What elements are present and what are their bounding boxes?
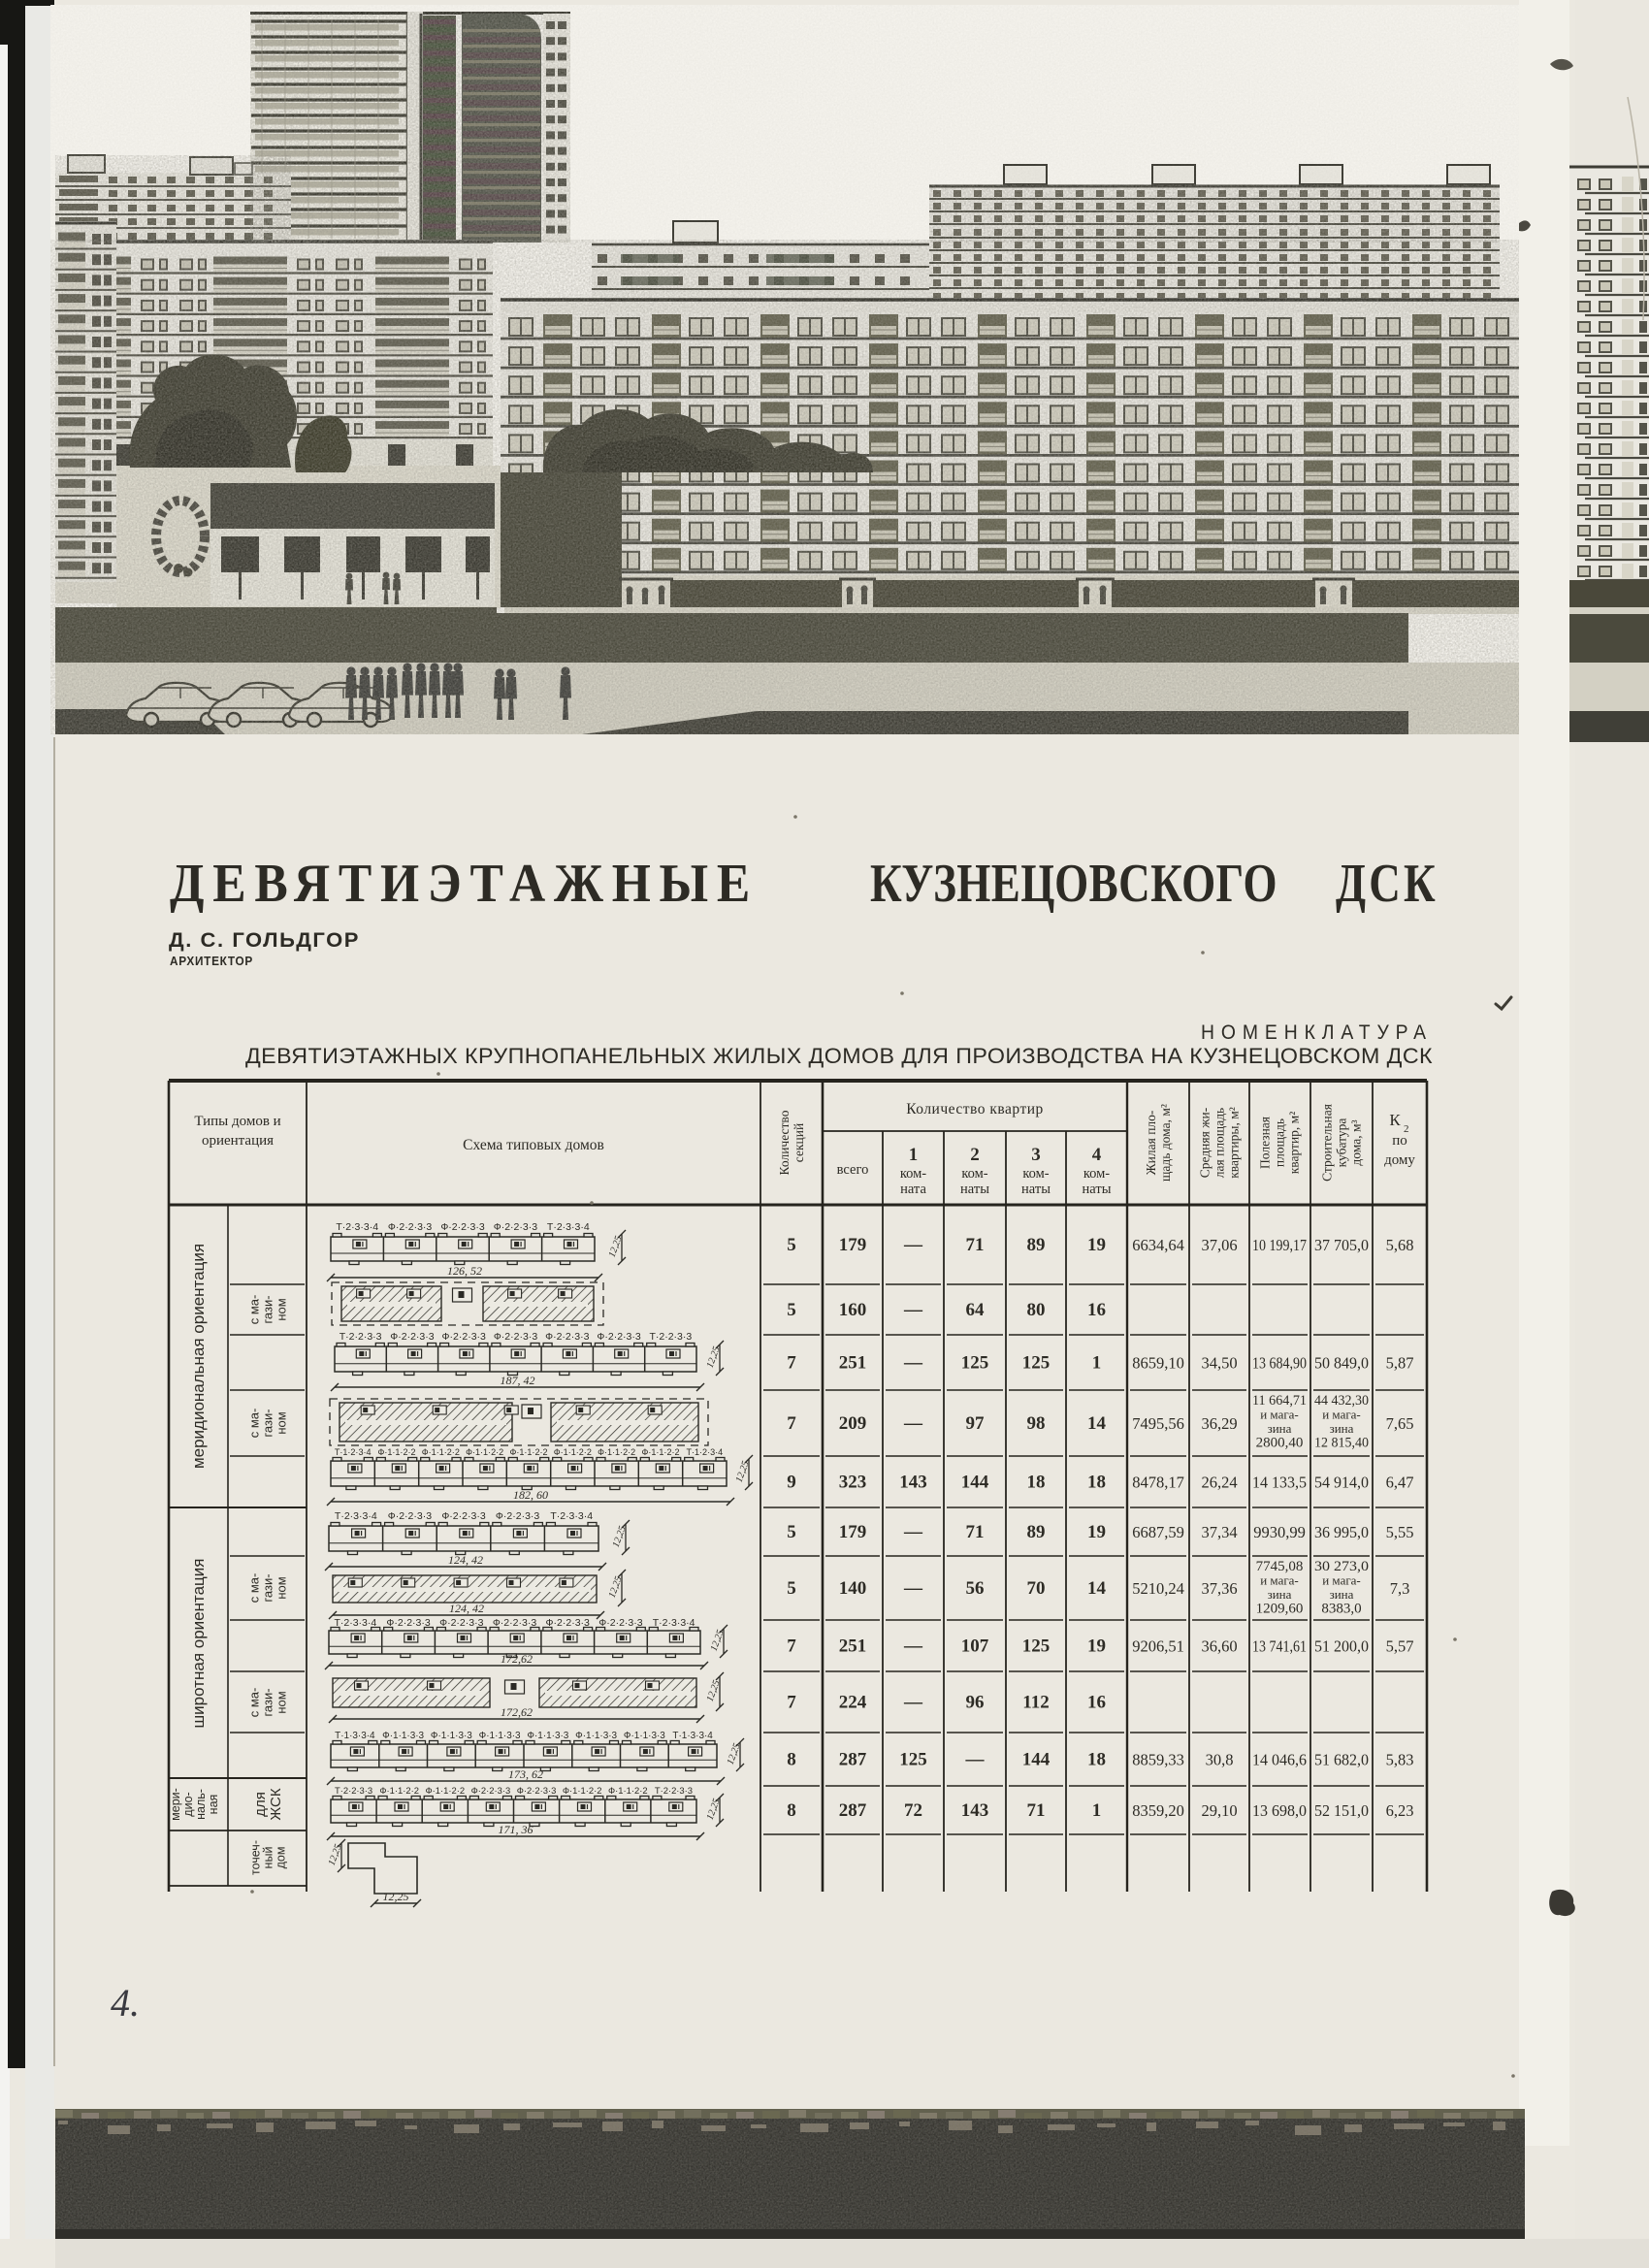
svg-text:АРХИТЕКТОР: АРХИТЕКТОР	[170, 954, 253, 968]
svg-text:наты: наты	[1021, 1182, 1051, 1197]
svg-text:ком-: ком-	[1083, 1166, 1110, 1182]
svg-text:с ма-: с ма-	[247, 1295, 262, 1325]
svg-text:2: 2	[970, 1145, 980, 1165]
svg-text:Т·2·3·3·4: Т·2·3·3·4	[336, 1221, 378, 1233]
svg-text:—: —	[903, 1413, 923, 1434]
svg-text:Ф·1·1·3·3: Ф·1·1·3·3	[431, 1731, 472, 1741]
svg-text:8859,33: 8859,33	[1132, 1751, 1184, 1769]
svg-text:36,29: 36,29	[1201, 1414, 1237, 1433]
svg-text:12,25: 12,25	[383, 1890, 409, 1903]
svg-text:Т·2·2·3·3: Т·2·2·3·3	[335, 1785, 372, 1796]
svg-text:наты: наты	[1083, 1182, 1112, 1197]
svg-text:126, 52: 126, 52	[447, 1264, 482, 1278]
svg-text:и мага-: и мага-	[1260, 1408, 1299, 1422]
svg-text:6,47: 6,47	[1386, 1474, 1414, 1492]
svg-text:Т·2·2·3·3: Т·2·2·3·3	[649, 1331, 692, 1343]
svg-text:точеч-: точеч-	[248, 1840, 262, 1875]
svg-text:Ф·1·1·2·2: Ф·1·1·2·2	[426, 1785, 466, 1796]
svg-text:Т·2·2·3·3: Т·2·2·3·3	[655, 1785, 693, 1796]
svg-text:70: 70	[1027, 1578, 1046, 1599]
svg-text:1: 1	[1092, 1353, 1102, 1374]
svg-text:КУЗНЕЦОВСКОГО: КУЗНЕЦОВСКОГО	[870, 854, 1277, 914]
svg-text:14 046,6: 14 046,6	[1252, 1751, 1307, 1769]
svg-text:с ма-: с ма-	[247, 1573, 262, 1604]
svg-text:квартир, м²: квартир, м²	[1287, 1112, 1302, 1175]
svg-text:Т·2·3·3·4: Т·2·3·3·4	[335, 1510, 377, 1522]
svg-text:125: 125	[899, 1750, 927, 1770]
svg-text:5: 5	[787, 1300, 796, 1320]
svg-text:Ф·1·1·2·2: Ф·1·1·2·2	[563, 1785, 602, 1796]
svg-text:ДЕВЯТИЭТАЖНЫХ КРУПНОПАНЕЛЬНЫХ: ДЕВЯТИЭТАЖНЫХ КРУПНОПАНЕЛЬНЫХ ЖИЛЫХ ДОМО…	[245, 1044, 1433, 1068]
svg-text:107: 107	[961, 1636, 989, 1657]
svg-text:с ма-: с ма-	[247, 1409, 262, 1439]
svg-text:12 815,40: 12 815,40	[1314, 1436, 1369, 1451]
svg-text:1: 1	[909, 1145, 919, 1165]
svg-text:5,68: 5,68	[1386, 1236, 1414, 1254]
svg-text:кубатура: кубатура	[1335, 1118, 1349, 1168]
svg-text:—: —	[903, 1353, 923, 1374]
svg-text:гази-: гази-	[261, 1409, 275, 1437]
svg-text:Полезная: Полезная	[1258, 1117, 1273, 1169]
svg-text:ном: ном	[275, 1411, 289, 1434]
svg-text:ном: ном	[275, 1576, 289, 1599]
svg-text:Ф·1·1·2·2: Ф·1·1·2·2	[608, 1785, 648, 1796]
svg-text:Средняя жи-: Средняя жи-	[1198, 1107, 1212, 1178]
svg-text:и мага-: и мага-	[1322, 1408, 1361, 1422]
svg-text:ком-: ком-	[961, 1166, 987, 1182]
svg-text:323: 323	[839, 1473, 867, 1493]
svg-text:Ф·1·1·2·2: Ф·1·1·2·2	[598, 1447, 635, 1457]
svg-text:для: для	[252, 1792, 269, 1817]
svg-text:8: 8	[787, 1800, 796, 1821]
svg-text:7,3: 7,3	[1390, 1579, 1410, 1598]
svg-text:5: 5	[787, 1578, 796, 1599]
svg-text:дому: дому	[1384, 1152, 1415, 1168]
svg-text:96: 96	[966, 1693, 985, 1713]
svg-text:8: 8	[787, 1750, 796, 1770]
svg-text:ном: ном	[275, 1298, 289, 1320]
svg-text:7: 7	[787, 1693, 796, 1713]
svg-text:144: 144	[1022, 1750, 1051, 1770]
svg-text:гази-: гази-	[261, 1295, 275, 1323]
svg-text:71: 71	[966, 1522, 985, 1542]
svg-text:50 849,0: 50 849,0	[1314, 1354, 1369, 1373]
svg-text:125: 125	[1022, 1353, 1051, 1374]
svg-text:—: —	[903, 1522, 923, 1542]
svg-text:5,55: 5,55	[1386, 1523, 1414, 1541]
svg-text:зина: зина	[1330, 1587, 1354, 1602]
svg-text:251: 251	[839, 1636, 867, 1657]
svg-text:56: 56	[966, 1578, 985, 1599]
svg-text:14 133,5: 14 133,5	[1252, 1474, 1307, 1492]
svg-text:29,10: 29,10	[1201, 1801, 1237, 1820]
svg-text:287: 287	[839, 1800, 867, 1821]
svg-text:зина: зина	[1330, 1421, 1354, 1436]
svg-text:гази-: гази-	[261, 1688, 275, 1716]
svg-text:71: 71	[1027, 1800, 1046, 1821]
svg-text:дома, м³: дома, м³	[1349, 1119, 1364, 1165]
svg-text:Т·2·2·3·3: Т·2·2·3·3	[339, 1331, 382, 1343]
svg-text:Ф·2·2·3·3: Ф·2·2·3·3	[517, 1785, 557, 1796]
svg-text:ориентация: ориентация	[202, 1133, 274, 1149]
svg-text:1: 1	[1092, 1800, 1102, 1821]
svg-text:7: 7	[787, 1636, 796, 1657]
svg-text:19: 19	[1087, 1636, 1106, 1657]
svg-text:ная: ная	[207, 1795, 220, 1815]
svg-text:209: 209	[839, 1413, 867, 1434]
svg-text:173, 62: 173, 62	[508, 1767, 543, 1781]
svg-text:секций: секций	[792, 1123, 806, 1162]
svg-text:172,62: 172,62	[501, 1705, 533, 1719]
svg-text:52 151,0: 52 151,0	[1314, 1801, 1369, 1820]
svg-text:9206,51: 9206,51	[1132, 1637, 1184, 1656]
svg-text:К: К	[1389, 1111, 1401, 1129]
svg-text:Количество квартир: Количество квартир	[906, 1101, 1044, 1118]
svg-text:5: 5	[787, 1235, 796, 1255]
svg-text:171, 36: 171, 36	[499, 1823, 533, 1836]
svg-text:26,24: 26,24	[1201, 1474, 1237, 1492]
svg-text:140: 140	[839, 1578, 867, 1599]
svg-text:Типы домов и: Типы домов и	[194, 1114, 280, 1129]
svg-text:9930,99: 9930,99	[1253, 1523, 1306, 1541]
svg-text:6687,59: 6687,59	[1132, 1523, 1184, 1541]
svg-text:Т·2·3·3·4: Т·2·3·3·4	[653, 1617, 695, 1629]
svg-text:1209,60: 1209,60	[1256, 1602, 1304, 1617]
svg-text:8359,20: 8359,20	[1132, 1801, 1184, 1820]
svg-text:ЖСК: ЖСК	[268, 1788, 284, 1821]
svg-text:9: 9	[787, 1473, 796, 1493]
svg-text:125: 125	[961, 1353, 989, 1374]
svg-text:и мага-: и мага-	[1260, 1573, 1299, 1588]
svg-text:Т·1·3·3·4: Т·1·3·3·4	[335, 1731, 375, 1741]
svg-text:—: —	[903, 1300, 923, 1320]
svg-text:—: —	[965, 1750, 986, 1770]
svg-text:16: 16	[1087, 1300, 1106, 1320]
svg-text:13 684,90: 13 684,90	[1252, 1354, 1307, 1373]
svg-text:Ф·2·2·3·3: Ф·2·2·3·3	[496, 1510, 539, 1522]
svg-text:13 741,61: 13 741,61	[1252, 1637, 1307, 1656]
svg-text:287: 287	[839, 1750, 867, 1770]
svg-text:Ф·1·1·3·3: Ф·1·1·3·3	[479, 1731, 521, 1741]
svg-text:72: 72	[904, 1800, 922, 1821]
svg-text:Ф·1·1·2·2: Ф·1·1·2·2	[466, 1447, 503, 1457]
svg-text:37,34: 37,34	[1201, 1523, 1237, 1541]
svg-text:112: 112	[1022, 1693, 1049, 1713]
svg-text:Ф·2·2·3·3: Ф·2·2·3·3	[441, 1510, 485, 1522]
svg-text:зина: зина	[1268, 1421, 1292, 1436]
svg-text:Ф·2·2·3·3: Ф·2·2·3·3	[545, 1331, 589, 1343]
svg-text:зина: зина	[1268, 1587, 1292, 1602]
svg-text:8659,10: 8659,10	[1132, 1354, 1184, 1373]
svg-text:8478,17: 8478,17	[1132, 1474, 1184, 1492]
svg-text:5,87: 5,87	[1386, 1354, 1414, 1373]
svg-text:мери-: мери-	[169, 1788, 182, 1821]
svg-text:Т·2·3·3·4: Т·2·3·3·4	[550, 1510, 593, 1522]
svg-text:54 914,0: 54 914,0	[1314, 1474, 1369, 1492]
svg-text:Схема типовых домов: Схема типовых домов	[463, 1137, 604, 1153]
svg-text:7,65: 7,65	[1386, 1414, 1414, 1433]
svg-text:251: 251	[839, 1353, 867, 1374]
svg-text:щадь дома, м²: щадь дома, м²	[1158, 1104, 1173, 1182]
svg-text:Ф·1·1·2·2: Ф·1·1·2·2	[377, 1447, 415, 1457]
svg-text:ком-: ком-	[900, 1166, 926, 1182]
svg-text:16: 16	[1087, 1693, 1106, 1713]
svg-text:6,23: 6,23	[1386, 1801, 1414, 1820]
svg-text:5,83: 5,83	[1386, 1751, 1414, 1769]
svg-text:36 995,0: 36 995,0	[1314, 1523, 1369, 1541]
svg-text:144: 144	[961, 1473, 989, 1493]
svg-text:Ф·1·1·3·3: Ф·1·1·3·3	[382, 1731, 424, 1741]
svg-text:14: 14	[1087, 1578, 1107, 1599]
svg-text:5: 5	[787, 1522, 796, 1542]
svg-text:Количество: Количество	[777, 1110, 792, 1175]
svg-text:дом: дом	[274, 1847, 287, 1869]
svg-text:6634,64: 6634,64	[1132, 1236, 1184, 1254]
svg-text:квартиры, м²: квартиры, м²	[1227, 1107, 1242, 1179]
svg-text:13 698,0: 13 698,0	[1252, 1801, 1307, 1820]
svg-text:дио-: дио-	[181, 1792, 195, 1816]
svg-text:124, 42: 124, 42	[448, 1553, 483, 1567]
svg-text:172,62: 172,62	[501, 1652, 533, 1666]
svg-text:Т·1·2·3·4: Т·1·2·3·4	[335, 1447, 372, 1457]
svg-text:89: 89	[1027, 1235, 1046, 1255]
svg-text:89: 89	[1027, 1522, 1046, 1542]
svg-text:Ф·2·2·3·3: Ф·2·2·3·3	[442, 1331, 486, 1343]
svg-text:160: 160	[839, 1300, 867, 1320]
svg-text:наты: наты	[960, 1182, 989, 1197]
svg-text:Ф·2·2·3·3: Ф·2·2·3·3	[494, 1331, 537, 1343]
svg-text:Ф·1·1·3·3: Ф·1·1·3·3	[527, 1731, 568, 1741]
svg-text:Ф·2·2·3·3: Ф·2·2·3·3	[440, 1221, 484, 1233]
svg-text:125: 125	[1022, 1636, 1051, 1657]
svg-text:—: —	[903, 1636, 923, 1657]
svg-text:ДЕВЯТИЭТАЖНЫЕ: ДЕВЯТИЭТАЖНЫЕ	[170, 854, 759, 914]
svg-text:143: 143	[899, 1473, 927, 1493]
svg-text:10 199,17: 10 199,17	[1252, 1236, 1307, 1254]
svg-text:Д. С. ГОЛЬДГОР: Д. С. ГОЛЬДГОР	[169, 929, 360, 952]
svg-text:18: 18	[1087, 1473, 1106, 1493]
svg-text:30,8: 30,8	[1206, 1751, 1234, 1769]
svg-text:Ф·1·1·2·2: Ф·1·1·2·2	[509, 1447, 547, 1457]
svg-text:Жилая пло-: Жилая пло-	[1144, 1110, 1158, 1175]
svg-text:Т·1·3·3·4: Т·1·3·3·4	[672, 1731, 713, 1741]
svg-text:224: 224	[839, 1693, 867, 1713]
svg-text:ном: ном	[275, 1691, 289, 1713]
svg-text:18: 18	[1087, 1750, 1106, 1770]
svg-text:—: —	[903, 1578, 923, 1599]
svg-text:по: по	[1392, 1133, 1407, 1149]
svg-text:—: —	[903, 1693, 923, 1713]
svg-text:187, 42: 187, 42	[501, 1374, 535, 1387]
svg-text:14: 14	[1087, 1413, 1107, 1434]
svg-text:64: 64	[966, 1300, 986, 1320]
svg-text:124, 42: 124, 42	[449, 1602, 484, 1615]
svg-text:36,60: 36,60	[1201, 1637, 1237, 1656]
svg-text:с ма-: с ма-	[247, 1688, 262, 1718]
svg-text:ком-: ком-	[1022, 1166, 1049, 1182]
svg-text:143: 143	[961, 1800, 989, 1821]
svg-text:—: —	[903, 1235, 923, 1255]
svg-text:98: 98	[1027, 1413, 1046, 1434]
svg-text:наль-: наль-	[194, 1789, 208, 1820]
svg-text:Ф·1·1·3·3: Ф·1·1·3·3	[624, 1731, 665, 1741]
svg-text:51 682,0: 51 682,0	[1314, 1751, 1369, 1769]
svg-text:Ф·1·1·2·2: Ф·1·1·2·2	[379, 1785, 419, 1796]
svg-text:НОМЕНКЛАТУРА: НОМЕНКЛАТУРА	[1201, 1021, 1433, 1044]
svg-text:и мага-: и мага-	[1322, 1573, 1361, 1588]
svg-text:всего: всего	[837, 1162, 869, 1178]
svg-text:Ф·1·1·2·2: Ф·1·1·2·2	[554, 1447, 592, 1457]
svg-text:7: 7	[787, 1353, 796, 1374]
svg-text:Т·2·3·3·4: Т·2·3·3·4	[334, 1617, 376, 1629]
svg-text:179: 179	[839, 1522, 867, 1542]
svg-text:ДСК: ДСК	[1336, 854, 1439, 914]
svg-text:Т·1·2·3·4: Т·1·2·3·4	[686, 1447, 723, 1457]
svg-text:площадь: площадь	[1273, 1118, 1287, 1167]
svg-text:меридиональная ориентация: меридиональная ориентация	[189, 1244, 208, 1469]
svg-text:4: 4	[1092, 1145, 1102, 1165]
svg-text:лая площадь: лая площадь	[1212, 1108, 1227, 1178]
svg-text:37 705,0: 37 705,0	[1314, 1236, 1369, 1254]
svg-text:Ф·2·2·3·3: Ф·2·2·3·3	[388, 1510, 432, 1522]
svg-text:Ф·1·1·3·3: Ф·1·1·3·3	[575, 1731, 617, 1741]
svg-text:Ф·2·2·3·3: Ф·2·2·3·3	[597, 1331, 640, 1343]
svg-text:8383,0: 8383,0	[1321, 1602, 1361, 1617]
svg-text:37,06: 37,06	[1201, 1236, 1237, 1254]
svg-text:Ф·1·1·2·2: Ф·1·1·2·2	[422, 1447, 460, 1457]
svg-text:7495,56: 7495,56	[1132, 1414, 1184, 1433]
svg-text:19: 19	[1087, 1235, 1106, 1255]
svg-text:Ф·2·2·3·3: Ф·2·2·3·3	[390, 1331, 434, 1343]
svg-text:3: 3	[1031, 1145, 1041, 1165]
svg-text:5210,24: 5210,24	[1132, 1579, 1184, 1598]
svg-text:ный: ный	[261, 1847, 275, 1869]
svg-text:Ф·1·1·2·2: Ф·1·1·2·2	[641, 1447, 679, 1457]
svg-text:7: 7	[787, 1413, 796, 1434]
svg-text:80: 80	[1027, 1300, 1046, 1320]
svg-text:71: 71	[966, 1235, 985, 1255]
svg-text:19: 19	[1087, 1522, 1106, 1542]
svg-text:182, 60: 182, 60	[513, 1488, 548, 1502]
svg-text:ната: ната	[900, 1182, 926, 1197]
svg-text:Ф·2·2·3·3: Ф·2·2·3·3	[471, 1785, 511, 1796]
svg-text:179: 179	[839, 1235, 867, 1255]
svg-text:5,57: 5,57	[1386, 1637, 1414, 1656]
svg-text:Т·2·3·3·4: Т·2·3·3·4	[547, 1221, 590, 1233]
svg-text:97: 97	[966, 1413, 986, 1434]
svg-text:37,36: 37,36	[1201, 1579, 1237, 1598]
svg-text:Ф·2·2·3·3: Ф·2·2·3·3	[388, 1221, 432, 1233]
svg-text:51 200,0: 51 200,0	[1314, 1637, 1369, 1656]
svg-text:4.: 4.	[111, 1981, 140, 2025]
svg-text:18: 18	[1027, 1473, 1046, 1493]
svg-text:34,50: 34,50	[1201, 1354, 1237, 1373]
svg-text:гази-: гази-	[261, 1573, 275, 1602]
svg-text:Ф·2·2·3·3: Ф·2·2·3·3	[494, 1221, 537, 1233]
svg-text:Строительная: Строительная	[1320, 1104, 1335, 1182]
svg-text:широтная ориентация: широтная ориентация	[189, 1559, 208, 1729]
svg-text:2800,40: 2800,40	[1256, 1436, 1304, 1451]
